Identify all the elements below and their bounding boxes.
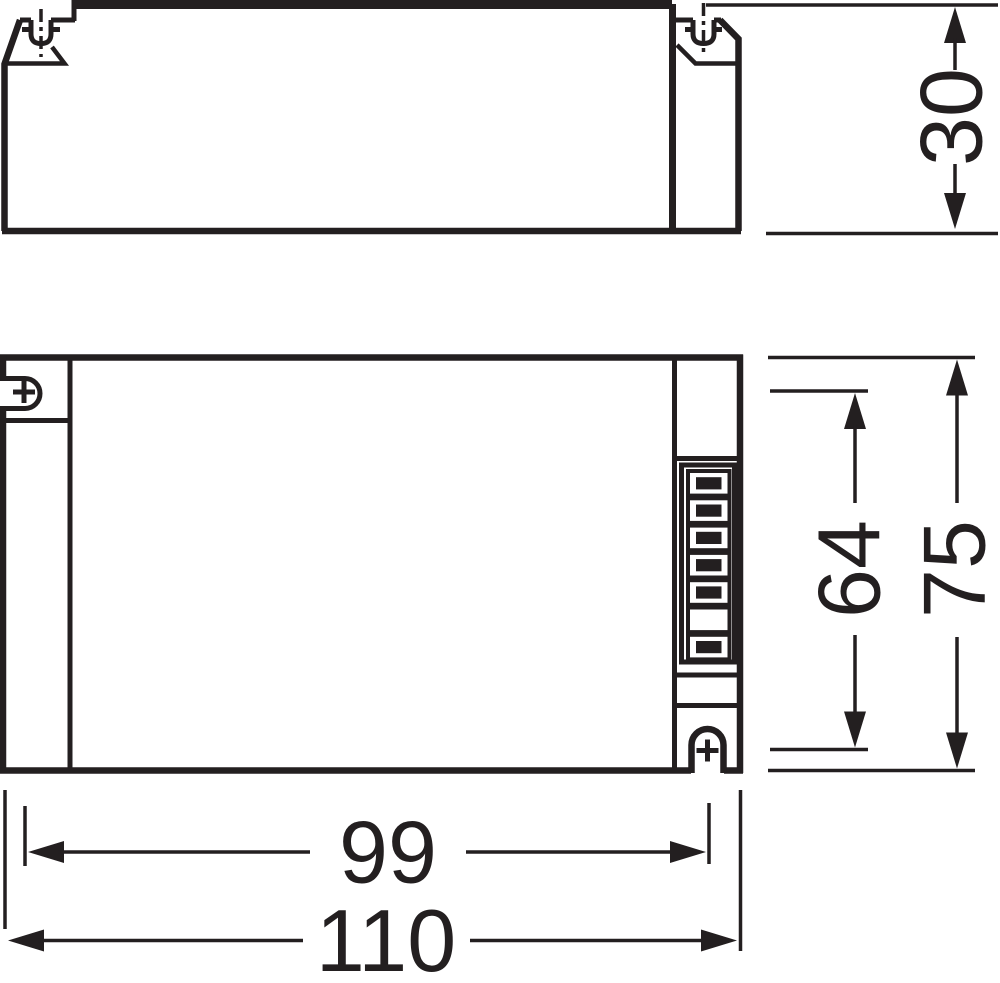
dim75-arrow-down-icon xyxy=(946,733,968,769)
dimension-drawing-page: 30 xyxy=(0,0,1000,983)
dimension-height-30: 30 xyxy=(706,5,1000,234)
dimension-slot-spacing-99: 99 xyxy=(25,803,709,902)
dim30-arrow-down-icon xyxy=(944,193,966,229)
side-left-tab-notch xyxy=(7,47,65,64)
terminal-cell-contact xyxy=(696,532,722,544)
terminal-cell xyxy=(688,608,730,633)
side-housing-top-edge xyxy=(72,0,672,9)
dim64-label: 64 xyxy=(800,520,899,618)
dim110-arrow-right-icon xyxy=(701,930,737,952)
dim64-arrow-up-icon xyxy=(844,393,866,429)
dim75-label: 75 xyxy=(905,520,1000,618)
terminal-cell-contact xyxy=(696,477,722,489)
terminal-cell-contact xyxy=(696,586,722,598)
side-view xyxy=(2,0,741,231)
dim110-label: 110 xyxy=(316,891,456,983)
terminal-cell-contact xyxy=(696,505,722,517)
side-right-tab-notch xyxy=(677,45,736,64)
dim99-arrow-right-icon xyxy=(670,841,706,863)
dim30-label: 30 xyxy=(902,68,1000,166)
ballast-dimension-drawing: 30 xyxy=(0,0,1000,983)
side-left-chamfer-and-edge xyxy=(5,20,21,231)
dim30-arrow-up-icon xyxy=(944,7,966,43)
dimension-slot-spacing-64: 64 xyxy=(770,391,899,750)
dim64-arrow-down-icon xyxy=(844,712,866,748)
side-right-chamfer-and-edge xyxy=(720,20,739,231)
terminal-cell-contact xyxy=(696,559,722,571)
dim99-label: 99 xyxy=(339,803,437,902)
terminal-cell-contact xyxy=(696,641,722,653)
plan-view xyxy=(0,355,743,774)
terminal-cells xyxy=(688,471,730,659)
